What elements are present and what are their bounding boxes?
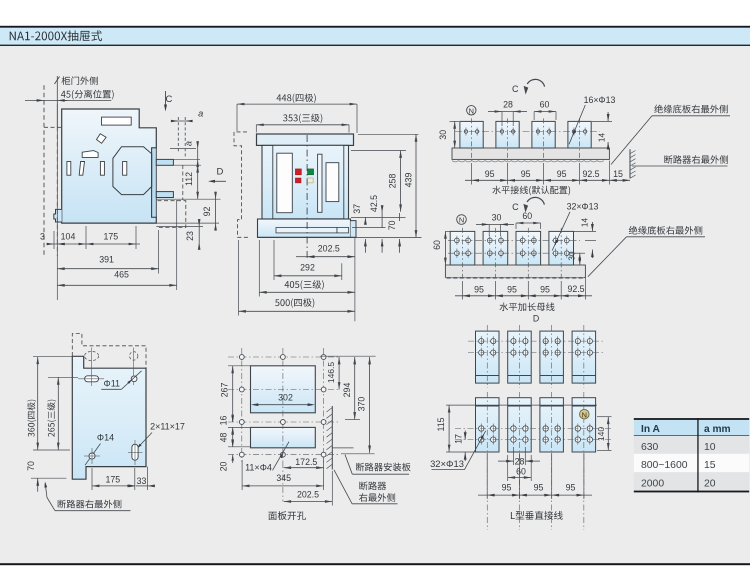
svg-text:391: 391 [99,254,114,264]
svg-text:37: 37 [352,204,362,214]
svg-text:30: 30 [568,251,577,261]
svg-text:95: 95 [502,482,512,492]
svg-text:60: 60 [522,211,532,221]
svg-text:D: D [216,167,223,178]
svg-text:16×Φ13: 16×Φ13 [584,95,616,105]
svg-text:95: 95 [534,482,544,492]
svg-text:17: 17 [454,434,464,444]
svg-text:14: 14 [581,218,590,228]
svg-text:2000: 2000 [641,479,664,490]
svg-text:a: a [198,109,203,119]
svg-text:175: 175 [103,231,118,241]
svg-text:60: 60 [540,100,550,110]
svg-text:32×Φ13: 32×Φ13 [567,202,599,212]
svg-text:60: 60 [516,466,526,476]
svg-text:48: 48 [218,433,228,443]
svg-text:140: 140 [596,427,606,441]
svg-text:30: 30 [438,130,448,140]
svg-text:465: 465 [114,270,129,280]
svg-text:28: 28 [503,100,513,110]
svg-text:10: 10 [704,442,716,453]
svg-text:C: C [165,94,172,105]
svg-text:202.5: 202.5 [318,244,340,254]
svg-text:N: N [582,410,587,419]
svg-text:146.5: 146.5 [326,362,336,384]
svg-text:258: 258 [388,174,398,189]
svg-text:92: 92 [202,207,212,217]
svg-text:172.5: 172.5 [295,457,317,467]
svg-text:C: C [512,84,519,94]
svg-text:92.5: 92.5 [582,169,599,179]
svg-text:800~1600: 800~1600 [641,460,688,471]
svg-text:Φ11: Φ11 [104,379,121,389]
svg-text:95: 95 [474,285,484,295]
svg-text:42.5: 42.5 [369,195,379,212]
svg-text:95: 95 [521,169,531,179]
svg-text:23: 23 [185,231,195,241]
svg-text:302: 302 [278,393,293,403]
svg-text:N: N [469,106,474,115]
svg-text:267: 267 [219,383,229,398]
svg-text:92.5: 92.5 [567,284,584,294]
svg-text:20: 20 [218,462,228,472]
svg-text:294: 294 [342,383,352,398]
svg-text:95: 95 [557,169,567,179]
svg-text:95: 95 [485,169,495,179]
svg-text:a: a [184,141,194,146]
svg-text:Φ14: Φ14 [97,433,114,443]
svg-text:N: N [459,216,464,225]
svg-text:70: 70 [387,220,397,230]
svg-text:In A: In A [641,424,661,435]
svg-text:2×11×17: 2×11×17 [150,422,185,432]
svg-text:11×Φ4: 11×Φ4 [245,463,272,473]
svg-text:370: 370 [357,397,367,412]
svg-text:104: 104 [61,231,76,241]
svg-text:439: 439 [404,173,414,188]
svg-text:D: D [533,314,539,324]
svg-text:30: 30 [492,213,502,223]
svg-text:60: 60 [432,240,442,250]
svg-text:175: 175 [105,474,120,484]
svg-text:345: 345 [276,473,291,483]
svg-text:3: 3 [40,232,45,242]
svg-text:C: C [512,202,519,212]
svg-text:630: 630 [641,442,659,453]
svg-text:292: 292 [300,262,315,272]
svg-text:70: 70 [26,461,36,471]
svg-text:95: 95 [507,285,517,295]
svg-text:a mm: a mm [704,424,731,435]
svg-text:14: 14 [597,133,606,143]
svg-text:112: 112 [184,172,194,186]
svg-text:16: 16 [218,416,228,426]
svg-text:20: 20 [704,479,716,490]
svg-text:95: 95 [540,285,550,295]
svg-text:33: 33 [137,476,147,486]
svg-text:95: 95 [566,482,576,492]
svg-text:115: 115 [436,417,446,431]
svg-text:32×Φ13: 32×Φ13 [430,458,464,469]
svg-text:202.5: 202.5 [297,489,319,499]
svg-text:15: 15 [704,460,716,471]
svg-text:15: 15 [613,169,623,179]
